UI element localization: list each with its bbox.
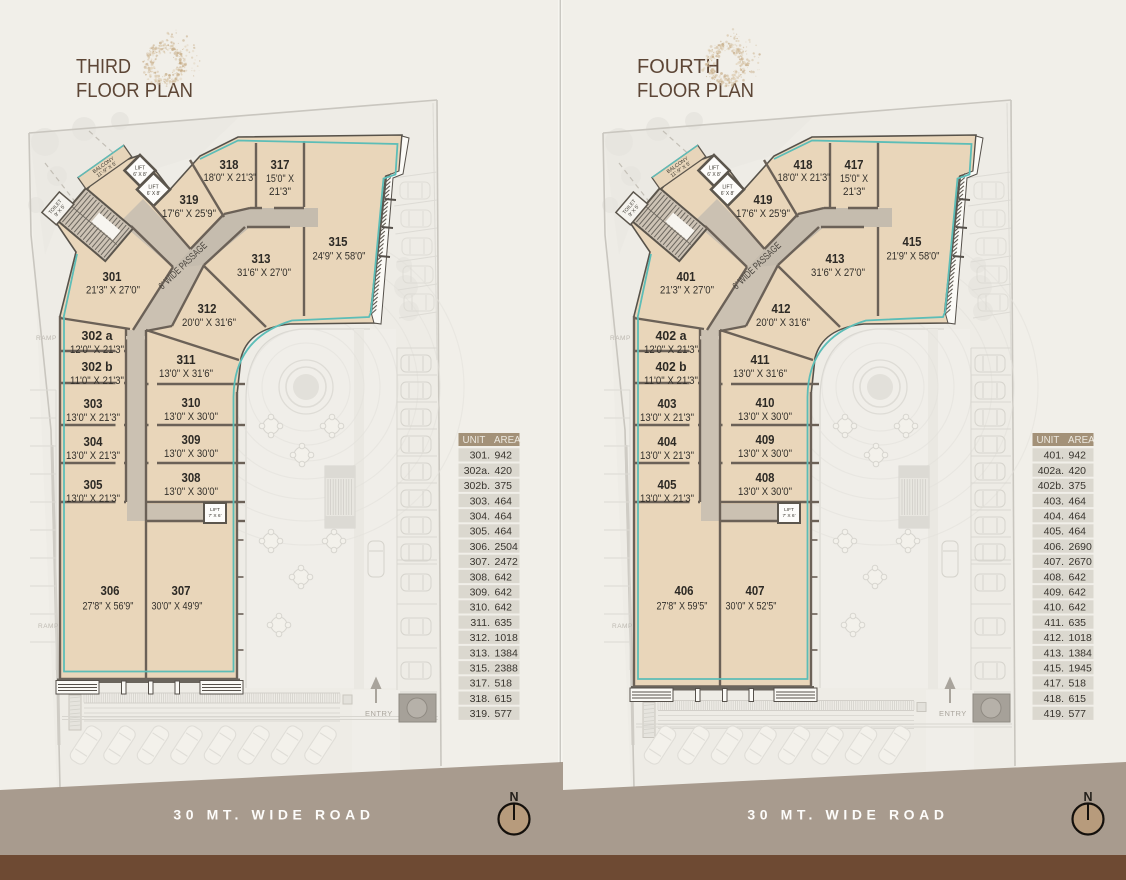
svg-text:415: 415	[903, 235, 922, 249]
svg-text:303: 303	[84, 397, 103, 411]
svg-text:313.: 313.	[470, 647, 490, 659]
svg-text:418.: 418.	[1044, 693, 1064, 705]
svg-text:2472: 2472	[495, 556, 519, 568]
svg-text:13'0" X 30'0": 13'0" X 30'0"	[738, 486, 792, 498]
svg-text:406.: 406.	[1044, 541, 1064, 553]
svg-text:402a.: 402a.	[1038, 465, 1064, 477]
svg-text:642: 642	[495, 587, 513, 599]
svg-text:20'0" X 31'6": 20'0" X 31'6"	[756, 317, 810, 329]
svg-text:404: 404	[658, 435, 677, 449]
svg-text:315: 315	[329, 235, 348, 249]
svg-text:408: 408	[756, 471, 775, 485]
svg-text:AREA: AREA	[494, 435, 521, 446]
svg-text:420: 420	[1069, 465, 1087, 477]
svg-text:315.: 315.	[470, 663, 490, 675]
svg-text:13'0" X 31'6": 13'0" X 31'6"	[733, 368, 787, 380]
svg-text:RAMP: RAMP	[612, 623, 633, 630]
svg-text:RAMP: RAMP	[610, 335, 631, 342]
svg-text:410: 410	[756, 396, 775, 410]
svg-text:12'0" X 21'3": 12'0" X 21'3"	[70, 344, 124, 356]
svg-text:11'0" X 21'3": 11'0" X 21'3"	[644, 375, 698, 387]
svg-text:305.: 305.	[470, 526, 490, 538]
svg-text:13'0" X 31'6": 13'0" X 31'6"	[159, 368, 213, 380]
svg-text:1018: 1018	[495, 632, 519, 644]
svg-text:304: 304	[84, 435, 103, 449]
svg-text:30 MT. WIDE ROAD: 30 MT. WIDE ROAD	[173, 807, 374, 823]
svg-text:312: 312	[198, 302, 217, 316]
svg-text:310: 310	[182, 396, 201, 410]
svg-text:15'0" X: 15'0" X	[840, 173, 869, 185]
svg-text:21'9" X 58'0": 21'9" X 58'0"	[887, 251, 940, 263]
svg-text:615: 615	[1069, 693, 1087, 705]
svg-text:407: 407	[746, 584, 765, 598]
svg-text:464: 464	[1069, 495, 1087, 507]
svg-text:405: 405	[658, 478, 677, 492]
svg-text:317.: 317.	[470, 678, 490, 690]
svg-text:N: N	[1083, 790, 1092, 804]
svg-text:464: 464	[1069, 511, 1087, 523]
svg-text:13'0" X 21'3": 13'0" X 21'3"	[66, 412, 120, 424]
svg-text:1384: 1384	[1069, 647, 1093, 659]
svg-text:303.: 303.	[470, 495, 490, 507]
svg-text:LIFT: LIFT	[148, 185, 158, 191]
svg-text:FLOOR PLAN: FLOOR PLAN	[637, 79, 754, 102]
svg-text:307.: 307.	[470, 556, 490, 568]
svg-text:RAMP: RAMP	[36, 335, 57, 342]
svg-text:403: 403	[658, 397, 677, 411]
svg-text:2504: 2504	[495, 541, 519, 553]
svg-text:24'9" X 58'0": 24'9" X 58'0"	[313, 251, 366, 263]
svg-text:419: 419	[754, 193, 773, 207]
svg-text:27'8" X 59'5": 27'8" X 59'5"	[657, 601, 708, 613]
svg-text:407.: 407.	[1044, 556, 1064, 568]
svg-text:18'0" X 21'3": 18'0" X 21'3"	[204, 172, 257, 184]
svg-text:411: 411	[751, 353, 770, 367]
svg-text:308.: 308.	[470, 571, 490, 583]
svg-text:305: 305	[84, 478, 103, 492]
svg-text:6' X 8': 6' X 8'	[707, 172, 721, 178]
svg-text:408.: 408.	[1044, 571, 1064, 583]
svg-text:ENTRY: ENTRY	[365, 709, 393, 718]
svg-text:7' X 6': 7' X 6'	[782, 513, 795, 519]
svg-text:409: 409	[756, 433, 775, 447]
svg-text:642: 642	[1069, 602, 1087, 614]
svg-text:464: 464	[495, 511, 513, 523]
svg-text:413: 413	[826, 252, 845, 266]
svg-text:313: 313	[252, 252, 271, 266]
svg-text:12'0" X 21'3": 12'0" X 21'3"	[644, 344, 698, 356]
svg-text:409.: 409.	[1044, 587, 1064, 599]
svg-text:410.: 410.	[1044, 602, 1064, 614]
svg-text:13'0" X 30'0": 13'0" X 30'0"	[164, 448, 218, 460]
svg-text:7' X 6': 7' X 6'	[208, 513, 221, 519]
svg-text:LIFT: LIFT	[210, 507, 220, 513]
svg-text:LIFT: LIFT	[709, 166, 719, 172]
svg-text:31'6" X 27'0": 31'6" X 27'0"	[811, 267, 865, 279]
svg-text:13'0" X 21'3": 13'0" X 21'3"	[66, 493, 120, 505]
svg-text:310.: 310.	[470, 602, 490, 614]
svg-text:404.: 404.	[1044, 511, 1064, 523]
svg-text:6' X 8': 6' X 8'	[133, 172, 147, 178]
svg-text:375: 375	[495, 480, 513, 492]
svg-text:304.: 304.	[470, 511, 490, 523]
svg-text:464: 464	[495, 495, 513, 507]
svg-text:318.: 318.	[470, 693, 490, 705]
svg-text:642: 642	[1069, 587, 1087, 599]
svg-text:13'0" X 21'3": 13'0" X 21'3"	[640, 450, 694, 462]
svg-text:RAMP: RAMP	[38, 623, 59, 630]
svg-text:415.: 415.	[1044, 663, 1064, 675]
svg-text:27'8" X 56'9": 27'8" X 56'9"	[83, 601, 134, 613]
svg-text:309: 309	[182, 433, 201, 447]
svg-text:13'0" X 21'3": 13'0" X 21'3"	[640, 493, 694, 505]
svg-text:30'0" X 52'5": 30'0" X 52'5"	[726, 601, 777, 613]
svg-text:518: 518	[1069, 678, 1087, 690]
svg-text:13'0" X 30'0": 13'0" X 30'0"	[164, 486, 218, 498]
svg-text:2670: 2670	[1069, 556, 1093, 568]
svg-text:30 MT. WIDE ROAD: 30 MT. WIDE ROAD	[747, 807, 948, 823]
svg-text:THIRD: THIRD	[76, 55, 131, 78]
svg-text:412: 412	[772, 302, 791, 316]
svg-text:464: 464	[495, 526, 513, 538]
svg-text:6' X 8': 6' X 8'	[721, 191, 735, 197]
svg-text:464: 464	[1069, 526, 1087, 538]
svg-text:307: 307	[172, 584, 191, 598]
svg-text:13'0" X 21'3": 13'0" X 21'3"	[66, 450, 120, 462]
svg-text:319.: 319.	[470, 708, 490, 720]
svg-text:2690: 2690	[1069, 541, 1093, 553]
svg-text:403.: 403.	[1044, 495, 1064, 507]
svg-text:317: 317	[271, 158, 290, 172]
svg-text:635: 635	[495, 617, 513, 629]
svg-text:306.: 306.	[470, 541, 490, 553]
svg-text:402 a: 402 a	[656, 329, 688, 343]
svg-text:N: N	[509, 790, 518, 804]
svg-text:417.: 417.	[1044, 678, 1064, 690]
svg-text:518: 518	[495, 678, 513, 690]
svg-text:405.: 405.	[1044, 526, 1064, 538]
svg-text:302 b: 302 b	[82, 360, 113, 374]
svg-text:13'0" X 30'0": 13'0" X 30'0"	[738, 411, 792, 423]
svg-text:LIFT: LIFT	[784, 507, 794, 513]
svg-text:1945: 1945	[1069, 663, 1093, 675]
svg-text:942: 942	[495, 450, 513, 462]
svg-text:301: 301	[103, 270, 122, 284]
svg-text:LIFT: LIFT	[722, 185, 732, 191]
svg-text:31'6" X 27'0": 31'6" X 27'0"	[237, 267, 291, 279]
svg-text:6' X 8': 6' X 8'	[147, 191, 161, 197]
svg-text:401: 401	[677, 270, 696, 284]
svg-text:306: 306	[101, 584, 120, 598]
svg-text:ENTRY: ENTRY	[939, 709, 967, 718]
svg-text:UNIT: UNIT	[1037, 435, 1060, 446]
svg-text:301.: 301.	[470, 450, 490, 462]
svg-text:13'0" X 21'3": 13'0" X 21'3"	[640, 412, 694, 424]
svg-text:577: 577	[1069, 708, 1087, 720]
svg-text:20'0" X 31'6": 20'0" X 31'6"	[182, 317, 236, 329]
svg-text:318: 318	[220, 158, 239, 172]
svg-text:15'0" X: 15'0" X	[266, 173, 295, 185]
svg-text:13'0" X 30'0": 13'0" X 30'0"	[164, 411, 218, 423]
svg-text:309.: 309.	[470, 587, 490, 599]
svg-text:642: 642	[495, 571, 513, 583]
svg-text:17'6" X 25'9": 17'6" X 25'9"	[736, 208, 790, 220]
svg-text:21'3": 21'3"	[843, 186, 865, 198]
svg-text:17'6" X 25'9": 17'6" X 25'9"	[162, 208, 216, 220]
svg-text:30'0" X 49'9": 30'0" X 49'9"	[152, 601, 203, 613]
svg-text:13'0" X 30'0": 13'0" X 30'0"	[738, 448, 792, 460]
svg-text:21'3" X 27'0": 21'3" X 27'0"	[660, 285, 714, 297]
svg-text:311.: 311.	[470, 617, 490, 629]
svg-text:411.: 411.	[1044, 617, 1064, 629]
svg-text:319: 319	[180, 193, 199, 207]
svg-text:2388: 2388	[495, 663, 519, 675]
svg-text:418: 418	[794, 158, 813, 172]
svg-text:401.: 401.	[1044, 450, 1064, 462]
svg-text:413.: 413.	[1044, 647, 1064, 659]
svg-text:311: 311	[177, 353, 196, 367]
svg-text:577: 577	[495, 708, 513, 720]
svg-text:302b.: 302b.	[464, 480, 490, 492]
svg-text:11'0" X 21'3": 11'0" X 21'3"	[70, 375, 124, 387]
svg-text:UNIT: UNIT	[463, 435, 486, 446]
svg-text:412.: 412.	[1044, 632, 1064, 644]
svg-text:406: 406	[675, 584, 694, 598]
svg-text:375: 375	[1069, 480, 1087, 492]
svg-text:1384: 1384	[495, 647, 519, 659]
svg-text:942: 942	[1069, 450, 1087, 462]
svg-text:308: 308	[182, 471, 201, 485]
svg-text:419.: 419.	[1044, 708, 1064, 720]
svg-text:615: 615	[495, 693, 513, 705]
svg-text:1018: 1018	[1069, 632, 1093, 644]
svg-text:302 a: 302 a	[82, 329, 114, 343]
svg-text:21'3": 21'3"	[269, 186, 291, 198]
svg-text:402 b: 402 b	[656, 360, 687, 374]
svg-text:417: 417	[845, 158, 864, 172]
svg-text:635: 635	[1069, 617, 1087, 629]
svg-text:402b.: 402b.	[1038, 480, 1064, 492]
svg-text:642: 642	[495, 602, 513, 614]
svg-text:312.: 312.	[470, 632, 490, 644]
svg-text:642: 642	[1069, 571, 1087, 583]
svg-text:AREA: AREA	[1068, 435, 1095, 446]
svg-text:420: 420	[495, 465, 513, 477]
svg-text:21'3" X 27'0": 21'3" X 27'0"	[86, 285, 140, 297]
svg-text:302a.: 302a.	[464, 465, 490, 477]
svg-text:LIFT: LIFT	[135, 166, 145, 172]
svg-text:18'0" X 21'3": 18'0" X 21'3"	[778, 172, 831, 184]
